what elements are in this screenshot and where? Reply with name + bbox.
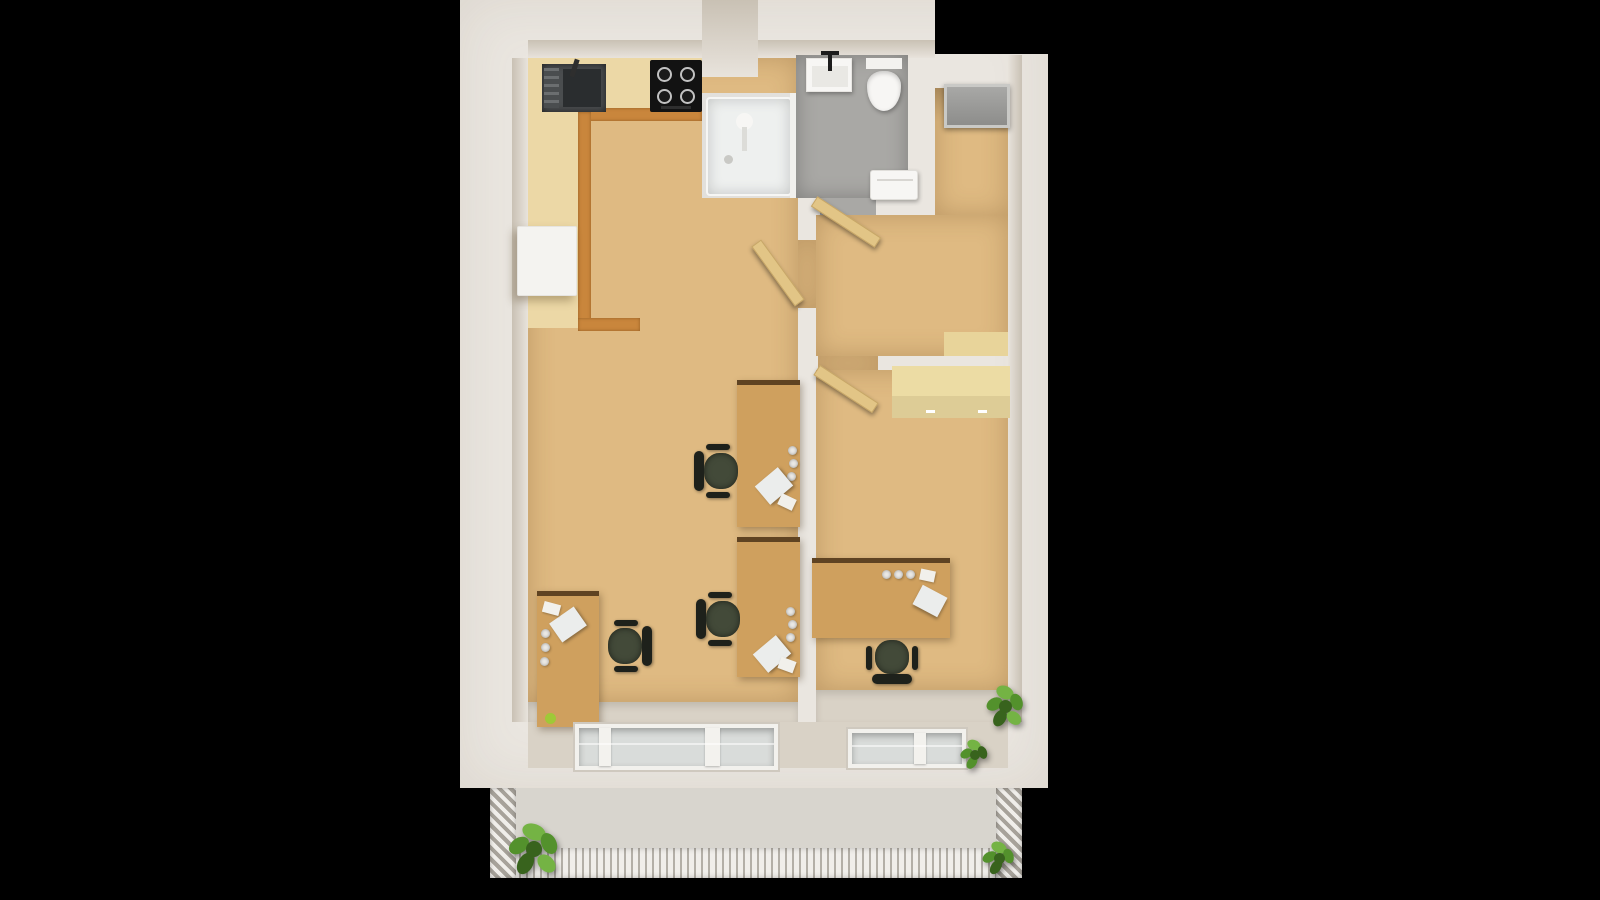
chair-armrest: [708, 640, 732, 646]
desk-left-wall: [537, 591, 599, 727]
cup: [786, 633, 795, 642]
chair-armrest: [706, 444, 730, 450]
chair-armrest: [866, 646, 872, 670]
laptop: [912, 585, 947, 618]
left-wall-inner-face: [512, 58, 528, 722]
entry-door: [944, 84, 1010, 128]
cup: [541, 629, 550, 638]
chair-seat: [875, 640, 909, 674]
window-left-room: [575, 724, 778, 770]
plant-leaf: [999, 700, 1012, 713]
balcony-plant: [982, 842, 1018, 876]
window-office-room: [848, 729, 966, 768]
office-chair: [600, 620, 654, 672]
floor-plan-render: [0, 0, 1600, 900]
potted-plant: [986, 686, 1026, 728]
service-niche: [702, 0, 758, 77]
plant-leaf: [994, 853, 1005, 864]
sideboard-front-face: [892, 396, 1010, 418]
kitchen-fridge-box: [517, 226, 577, 296]
shower-tray: [706, 97, 792, 196]
balcony-tile-floor: [514, 788, 998, 850]
chair-armrest: [706, 492, 730, 498]
cup: [540, 657, 549, 666]
window-glass-highlight: [852, 745, 962, 747]
toilet-cistern: [866, 58, 902, 69]
desk-edge: [737, 380, 800, 385]
toilet: [864, 58, 904, 114]
chair-armrest: [614, 666, 638, 672]
office-chair: [694, 592, 746, 646]
burner-ring: [680, 89, 695, 104]
cup: [786, 607, 795, 616]
cooktop-controls: [661, 106, 691, 109]
desk-a: [737, 380, 800, 527]
right-wall-inner-face: [1008, 55, 1022, 722]
bathroom-vanity: [806, 58, 852, 92]
office-chair: [866, 634, 918, 690]
chair-seat: [704, 453, 738, 489]
appliance-lid-line: [877, 179, 913, 181]
chair-armrest: [708, 592, 732, 598]
chair-back: [642, 626, 652, 666]
sideboard-handle: [978, 410, 987, 413]
toilet-bowl: [867, 71, 901, 111]
hallway-bench: [944, 332, 1008, 356]
plant-leaf: [526, 841, 542, 857]
balcony-deck-strip: [514, 848, 998, 878]
desk-edge: [812, 558, 950, 563]
chair-back: [872, 674, 912, 684]
window-mullion: [914, 733, 926, 764]
black-notch-top-right: [935, 0, 1048, 54]
desk-edge: [537, 591, 599, 596]
shower-pipe: [742, 127, 747, 151]
window-mullion: [599, 728, 611, 766]
desk-office: [812, 558, 950, 638]
cup: [882, 570, 891, 579]
paper: [919, 569, 936, 583]
sink-drainboard: [544, 68, 559, 108]
apple: [545, 713, 556, 724]
window-mullion: [705, 728, 720, 766]
office-chair: [692, 444, 744, 498]
balcony-plant: [508, 824, 562, 876]
sideboard-cabinet: [892, 366, 1010, 418]
burner-ring: [657, 67, 672, 82]
cup: [541, 643, 550, 652]
plant-leaf: [970, 750, 980, 760]
desk-edge: [737, 537, 800, 542]
chair-back: [694, 451, 704, 491]
cup: [789, 459, 798, 468]
potted-plant: [960, 740, 990, 770]
faucet-handle-icon: [821, 51, 839, 55]
paper: [777, 493, 797, 511]
chair-seat: [706, 601, 740, 637]
paper: [542, 601, 561, 616]
chair-back: [696, 599, 706, 639]
cup: [788, 446, 797, 455]
cup: [906, 570, 915, 579]
kitchen-counter-trim-corner: [578, 318, 640, 331]
bathroom-appliance: [870, 170, 918, 200]
burner-ring: [680, 67, 695, 82]
chair-armrest: [912, 646, 918, 670]
burner-ring: [657, 89, 672, 104]
paper: [777, 657, 796, 674]
office-room-sill: [816, 690, 1008, 722]
window-glass-highlight: [579, 743, 774, 745]
kitchen-counter-trim-v: [578, 112, 591, 330]
shower-drain: [724, 155, 733, 164]
chair-armrest: [614, 620, 638, 626]
office-doorway-threshold: [818, 356, 878, 370]
cooktop: [650, 60, 702, 112]
kitchen-sink: [542, 64, 606, 112]
sideboard-handle: [926, 410, 935, 413]
chair-seat: [608, 628, 642, 664]
desk-b: [737, 537, 800, 677]
cup: [788, 620, 797, 629]
cup: [894, 570, 903, 579]
